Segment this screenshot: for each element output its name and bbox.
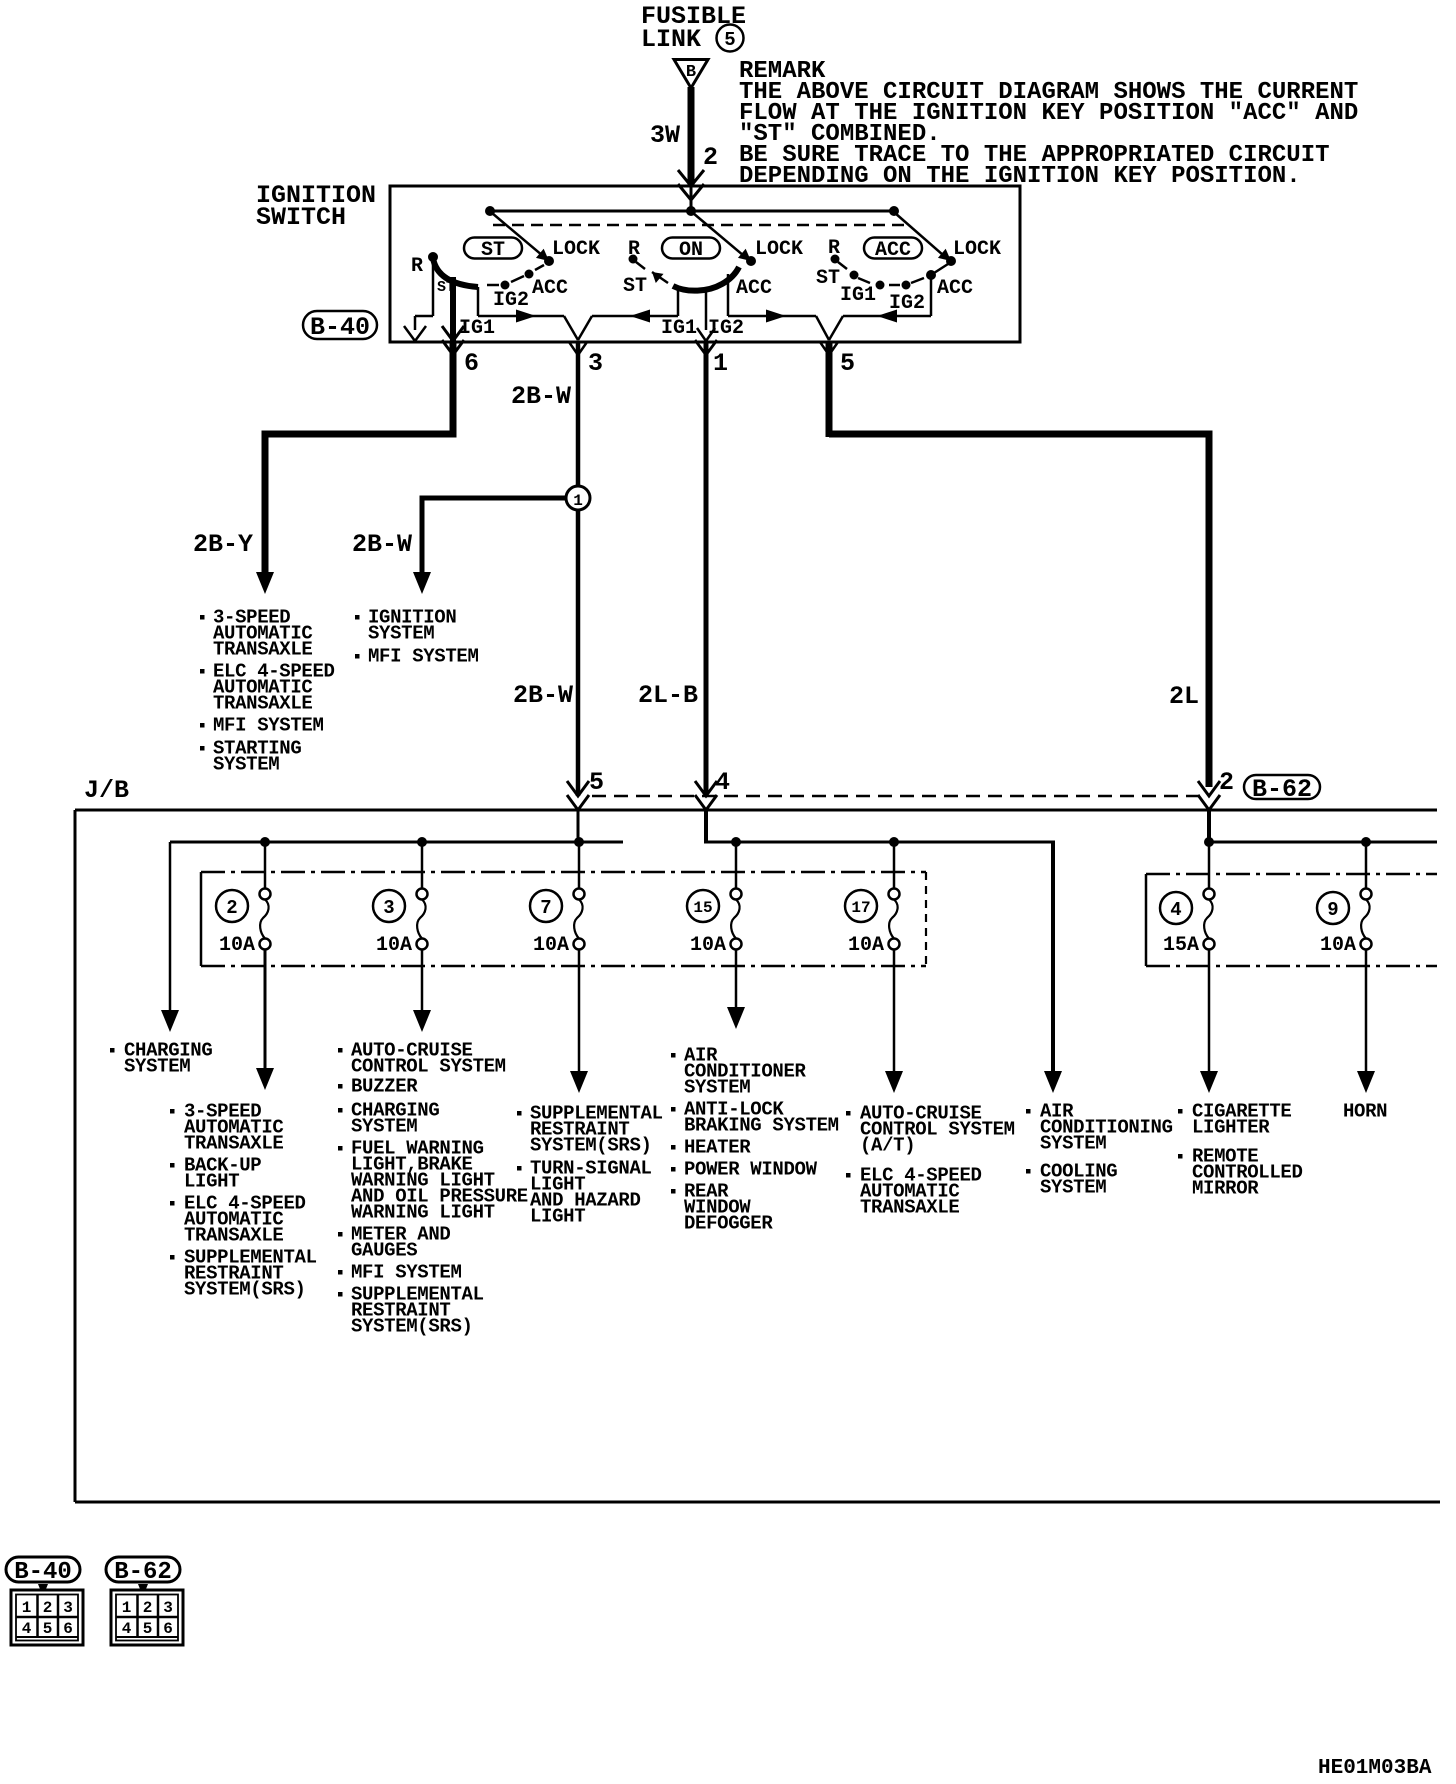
svg-text:IG2: IG2 [493,289,529,312]
svg-text:2B-W: 2B-W [511,382,571,411]
svg-text:LOCK: LOCK [953,238,1001,261]
svg-text:10A: 10A [219,934,255,957]
svg-text:4: 4 [1170,899,1181,921]
svg-text:17: 17 [851,899,870,917]
svg-text:ON: ON [679,239,703,262]
svg-text:BRAKING SYSTEM: BRAKING SYSTEM [684,1115,839,1137]
svg-text:10A: 10A [1320,934,1356,957]
svg-text:3: 3 [63,1599,73,1617]
svg-text:LIGHT: LIGHT [184,1171,239,1193]
svg-text:5: 5 [840,349,855,378]
svg-text:LIGHT: LIGHT [530,1206,585,1228]
svg-text:IG1: IG1 [661,317,697,340]
svg-text:MFI SYSTEM: MFI SYSTEM [351,1262,462,1284]
svg-text:SYSTEM: SYSTEM [1040,1177,1106,1199]
svg-text:LOCK: LOCK [755,238,803,261]
svg-text:TRANSAXLE: TRANSAXLE [184,1225,283,1247]
svg-text:4: 4 [715,768,730,797]
svg-text:15: 15 [693,899,712,917]
svg-text:1: 1 [122,1599,132,1617]
svg-text:B-62: B-62 [114,1559,172,1586]
svg-text:2: 2 [703,143,718,172]
svg-text:TRANSAXLE: TRANSAXLE [213,693,312,715]
svg-text:3: 3 [383,897,394,919]
svg-text:2: 2 [43,1599,53,1617]
svg-text:HEATER: HEATER [684,1137,751,1159]
svg-text:ACC: ACC [532,277,568,300]
svg-text:2: 2 [143,1599,153,1617]
svg-text:SYSTEM: SYSTEM [213,754,279,776]
svg-text:ACC: ACC [875,239,911,262]
svg-text:ST: ST [437,279,455,296]
svg-text:MFI SYSTEM: MFI SYSTEM [368,646,479,668]
svg-text:B-40: B-40 [14,1559,72,1586]
svg-text:5: 5 [143,1620,153,1638]
svg-text:IG1: IG1 [840,284,876,307]
svg-text:HORN: HORN [1343,1101,1387,1123]
svg-text:TRANSAXLE: TRANSAXLE [860,1197,959,1219]
svg-text:1: 1 [713,349,728,378]
svg-text:WARNING LIGHT: WARNING LIGHT [351,1202,495,1224]
svg-text:CONTROL SYSTEM: CONTROL SYSTEM [351,1056,506,1078]
svg-text:2B-Y: 2B-Y [193,530,253,559]
svg-text:6: 6 [63,1620,73,1638]
svg-text:LIGHTER: LIGHTER [1192,1117,1270,1139]
svg-text:HE01M03BA: HE01M03BA [1318,1757,1432,1780]
svg-text:SYSTEM: SYSTEM [351,1116,417,1138]
svg-text:10A: 10A [533,934,569,957]
svg-text:TRANSAXLE: TRANSAXLE [184,1133,283,1155]
svg-text:ACC: ACC [736,277,772,300]
svg-text:BUZZER: BUZZER [351,1076,418,1098]
svg-text:2: 2 [1219,768,1234,797]
svg-text:R: R [411,255,423,278]
svg-text:(A/T): (A/T) [860,1135,915,1157]
svg-text:IG2: IG2 [708,317,744,340]
svg-text:ST: ST [623,275,647,298]
svg-text:3W: 3W [650,121,680,150]
svg-text:7: 7 [540,897,551,919]
svg-text:5: 5 [43,1620,53,1638]
svg-text:5: 5 [589,768,604,797]
svg-text:DEFOGGER: DEFOGGER [684,1213,773,1235]
svg-text:TRANSAXLE: TRANSAXLE [213,639,312,661]
svg-text:6: 6 [464,349,479,378]
svg-text:10A: 10A [376,934,412,957]
svg-text:6: 6 [163,1620,173,1638]
svg-text:4: 4 [22,1620,32,1638]
svg-text:1: 1 [22,1599,32,1617]
svg-text:GAUGES: GAUGES [351,1240,417,1262]
svg-text:2: 2 [226,897,237,919]
svg-text:3: 3 [163,1599,173,1617]
svg-text:POWER WINDOW: POWER WINDOW [684,1159,818,1181]
svg-text:2L: 2L [1169,682,1199,711]
svg-text:SYSTEM: SYSTEM [684,1077,750,1099]
svg-text:1: 1 [573,492,583,510]
svg-text:B-40: B-40 [310,313,370,342]
svg-text:SYSTEM: SYSTEM [1040,1133,1106,1155]
svg-text:LOCK: LOCK [552,238,600,261]
svg-text:MFI SYSTEM: MFI SYSTEM [213,715,324,737]
svg-text:2B-W: 2B-W [352,530,412,559]
svg-text:J/B: J/B [84,776,129,805]
svg-text:IG1: IG1 [459,317,495,340]
svg-text:9: 9 [1327,899,1338,921]
svg-text:B-62: B-62 [1252,775,1312,804]
svg-text:SYSTEM(SRS): SYSTEM(SRS) [530,1135,652,1157]
svg-text:4: 4 [122,1620,132,1638]
svg-text:5: 5 [724,29,735,51]
svg-text:SYSTEM(SRS): SYSTEM(SRS) [351,1316,473,1338]
svg-text:B: B [686,63,696,82]
svg-text:ACC: ACC [937,277,973,300]
svg-text:2B-W: 2B-W [513,681,573,710]
svg-text:ST: ST [816,267,840,290]
svg-text:2L-B: 2L-B [638,681,698,710]
svg-text:LINK: LINK [641,25,701,54]
svg-text:3: 3 [588,349,603,378]
svg-text:SYSTEM: SYSTEM [368,623,434,645]
svg-text:ST: ST [481,239,505,262]
svg-text:MIRROR: MIRROR [1192,1178,1259,1200]
svg-text:SYSTEM(SRS): SYSTEM(SRS) [184,1279,306,1301]
svg-text:15A: 15A [1163,934,1199,957]
svg-text:SYSTEM: SYSTEM [124,1056,190,1078]
svg-text:10A: 10A [848,934,884,957]
svg-text:SWITCH: SWITCH [256,203,346,232]
svg-text:10A: 10A [690,934,726,957]
